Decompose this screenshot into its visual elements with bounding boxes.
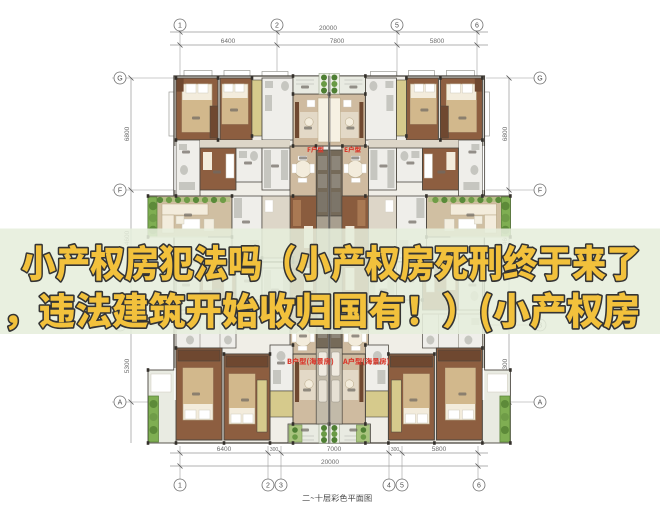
svg-text:6: 6 [477, 482, 481, 489]
svg-text:5800: 5800 [432, 446, 447, 453]
svg-text:5800: 5800 [430, 38, 445, 45]
svg-text:5: 5 [400, 482, 404, 489]
svg-text:2: 2 [275, 22, 279, 29]
svg-text:6400: 6400 [221, 38, 236, 45]
svg-text:7800: 7800 [330, 38, 345, 45]
svg-text:300: 300 [270, 447, 279, 453]
svg-text:A: A [538, 399, 543, 406]
svg-text:1: 1 [178, 482, 182, 489]
svg-text:F: F [538, 187, 542, 194]
svg-text:6: 6 [475, 22, 479, 29]
svg-text:3: 3 [279, 482, 283, 489]
svg-text:4: 4 [387, 482, 391, 489]
svg-text:A: A [118, 399, 123, 406]
svg-text:7000: 7000 [327, 446, 342, 453]
svg-text:G: G [117, 75, 122, 82]
svg-text:6400: 6400 [217, 446, 232, 453]
svg-text:G: G [537, 75, 542, 82]
svg-text:5300: 5300 [124, 358, 131, 373]
svg-text:2: 2 [266, 482, 270, 489]
svg-text:20000: 20000 [319, 25, 337, 32]
svg-text:5: 5 [395, 22, 399, 29]
svg-text:6800: 6800 [502, 126, 509, 141]
svg-text:20000: 20000 [321, 459, 339, 466]
svg-text:300: 300 [391, 447, 400, 453]
svg-text:F: F [118, 187, 122, 194]
svg-text:6800: 6800 [124, 126, 131, 141]
svg-text:1: 1 [178, 22, 182, 29]
